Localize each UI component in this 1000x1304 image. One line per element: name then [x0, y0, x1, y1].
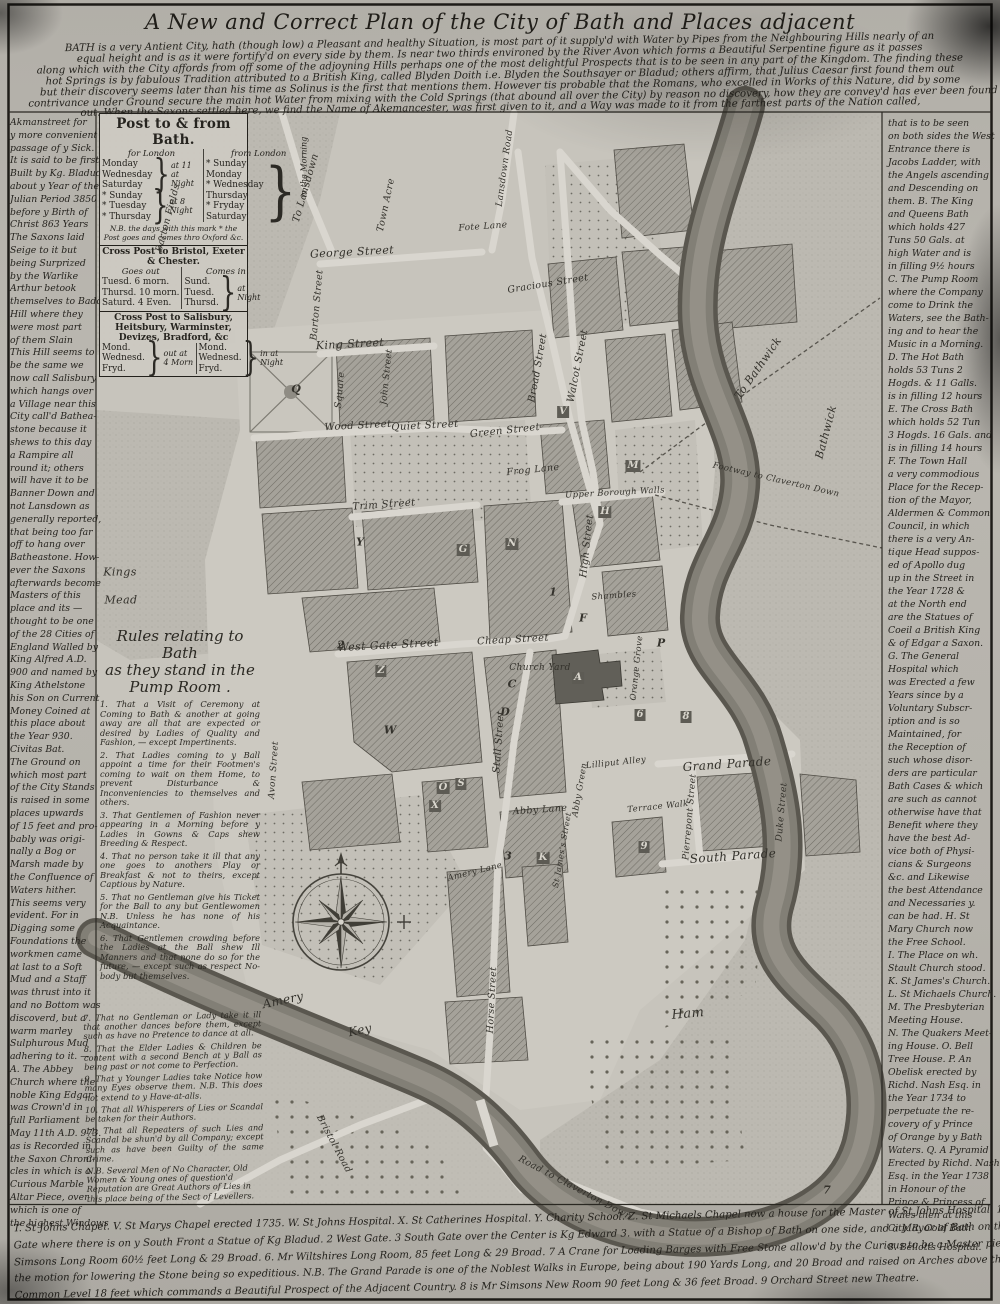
margin-line: generally reported,: [10, 514, 96, 527]
margin-line: Seige to it but: [10, 245, 96, 258]
post-day: Mond.: [199, 343, 242, 354]
map-scan-page: A New and Correct Plan of the City of Ba…: [0, 0, 1000, 1304]
post-day: Saturday: [102, 180, 152, 191]
margin-line: afterwards become: [10, 578, 96, 591]
right-margin-key: that is to be seenon both sides the West…: [888, 117, 994, 1235]
post-day: * Fryday: [206, 201, 264, 212]
margin-line: Erected by Richd. Nash: [888, 1157, 994, 1170]
margin-line: in filling 9½ hours: [888, 260, 994, 273]
margin-line: Waters, see the Bath-: [888, 312, 994, 325]
margin-line: full Parliament: [10, 1115, 96, 1128]
margin-line: ing House. O. Bell: [888, 1040, 994, 1053]
margin-line: and Necessaries y.: [888, 897, 994, 910]
margin-line: are the Statues of: [888, 611, 994, 624]
rules-title-line: Pump Room .: [100, 679, 260, 696]
post-table-note: N.B. the days with this mark * the Post …: [100, 222, 247, 246]
margin-line: Waters hither.: [10, 885, 96, 898]
margin-line: of the City Stands: [10, 782, 96, 795]
margin-line: iption and is so: [888, 715, 994, 728]
margin-line: being Surprized: [10, 258, 96, 271]
margin-line: the Free School.: [888, 936, 994, 949]
margin-line: E. The Cross Bath: [888, 403, 994, 416]
for-london-header: for London: [102, 149, 201, 159]
rule-item: 5. That no Gentleman give his Ticket for…: [100, 893, 260, 931]
margin-line: Years since by a: [888, 689, 994, 702]
margin-line: which most part: [10, 770, 96, 783]
brace-glyph: }: [220, 273, 237, 312]
margin-line: a Village near this: [10, 399, 96, 412]
margin-line: is raised in some: [10, 795, 96, 808]
margin-line: his Son on Current: [10, 693, 96, 706]
margin-line: Obelisk erected by: [888, 1066, 994, 1079]
margin-line: bably was origi-: [10, 834, 96, 847]
post-day: Fryd.: [102, 364, 145, 375]
margin-line: can be had. H. St: [888, 910, 994, 923]
margin-line: Hogds. & 11 Galls.: [888, 377, 994, 390]
margin-line: a very commodious: [888, 468, 994, 481]
post-day: * Sunday: [206, 159, 264, 170]
intro-paragraph: BATH is a very Antient City, hath (thoug…: [28, 31, 973, 121]
rule-item: 9. That y Younger Ladies take Notice how…: [84, 1071, 263, 1102]
margin-line: May 11th A.D. 973.: [10, 1128, 96, 1141]
post-time: in at Night: [260, 349, 290, 367]
margin-line: Voluntary Subscr-: [888, 702, 994, 715]
margin-line: 900 and named by: [10, 667, 96, 680]
margin-line: there is a very An-: [888, 533, 994, 546]
margin-line: of 15 feet and pro-: [10, 821, 96, 834]
post-day: Tuesd.: [184, 288, 218, 299]
margin-line: is in filling 14 hours: [888, 442, 994, 455]
margin-line: and Descending on: [888, 182, 994, 195]
post-time: in the Morning: [300, 184, 309, 198]
margin-line: Tuns 50 Gals. at: [888, 234, 994, 247]
margin-line: at last to a Soft: [10, 962, 96, 975]
rule-item: 6. That Gentlemen crowding before the La…: [100, 934, 260, 982]
margin-line: the Confluence of: [10, 872, 96, 885]
margin-line: this place about: [10, 718, 96, 731]
margin-line: Esq. in the Year 1738: [888, 1170, 994, 1183]
margin-line: Marsh made by: [10, 859, 96, 872]
margin-line: evident. For in: [10, 910, 96, 923]
margin-line: Coeil a British King: [888, 624, 994, 637]
margin-line: not Lansdown as: [10, 501, 96, 514]
margin-line: the Saxon Chroni-: [10, 1154, 96, 1167]
margin-line: Meeting House.: [888, 1014, 994, 1027]
margin-line: Hospital which: [888, 663, 994, 676]
post-day: Wednesd.: [102, 353, 145, 364]
margin-line: City call'd Bathea-: [10, 411, 96, 424]
margin-line: Benefit where they: [888, 819, 994, 832]
margin-line: I. The Place on wh.: [888, 949, 994, 962]
margin-line: K. St James's Church.: [888, 975, 994, 988]
post-day: Thursd.: [184, 298, 218, 309]
margin-line: 3 Hogds. 16 Gals. and: [888, 429, 994, 442]
margin-line: N. The Quakers Meet-: [888, 1027, 994, 1040]
margin-line: Stault Church stood.: [888, 962, 994, 975]
margin-line: Christ 863 Years: [10, 219, 96, 232]
margin-line: C. The Pump Room: [888, 273, 994, 286]
margin-line: L. St Michaels Church.: [888, 988, 994, 1001]
margin-line: Tree House. P. An: [888, 1053, 994, 1066]
margin-line: Place for the Recep-: [888, 481, 994, 494]
margin-line: such whose disor-: [888, 754, 994, 767]
map-title: A New and Correct Plan of the City of Ba…: [0, 10, 1000, 34]
margin-line: be the same we: [10, 360, 96, 373]
margin-line: G. The General: [888, 650, 994, 663]
margin-line: up in the Street in: [888, 572, 994, 585]
post-day: * Tuesday: [102, 201, 151, 212]
margin-line: Bath Cases & which: [888, 780, 994, 793]
margin-line: Church where the: [10, 1077, 96, 1090]
rule-item: 2. That Ladies coming to y Ball appoint …: [100, 751, 260, 808]
margin-line: Waters. Q. A Pyramid: [888, 1144, 994, 1157]
margin-line: was Crown'd in: [10, 1102, 96, 1115]
margin-line: otherwise have that: [888, 806, 994, 819]
rule-item: 4. That no person take it ill that any o…: [100, 852, 260, 890]
margin-line: that is to be seen: [888, 117, 994, 130]
margin-line: thought to be one: [10, 616, 96, 629]
margin-line: tique Head suppos-: [888, 546, 994, 559]
margin-line: of them Slain: [10, 335, 96, 348]
margin-line: Digging some: [10, 923, 96, 936]
margin-line: that being too far: [10, 527, 96, 540]
margin-line: passage of y Sick.: [10, 143, 96, 156]
margin-line: Akmanstreet for: [10, 117, 96, 130]
margin-line: ed of Apollo dug: [888, 559, 994, 572]
cross-post-title: Cross Post to Bristol, Exeter & Chester.: [100, 246, 247, 267]
margin-line: The Saxons laid: [10, 232, 96, 245]
brace-glyph: }: [146, 339, 163, 378]
margin-line: F. The Town Hall: [888, 455, 994, 468]
brace-glyph: }: [152, 187, 169, 226]
margin-line: noble King Edgar: [10, 1090, 96, 1103]
margin-line: at the North end: [888, 598, 994, 611]
margin-line: was Erected a few: [888, 676, 994, 689]
margin-line: of Orange by y Bath: [888, 1131, 994, 1144]
margin-line: This seems very: [10, 898, 96, 911]
margin-line: ever the Saxons: [10, 565, 96, 578]
margin-line: themselves to Badon: [10, 296, 96, 309]
margin-line: was thrust into it: [10, 987, 96, 1000]
margin-line: vice both of Physi-: [888, 845, 994, 858]
margin-line: M. The Presbyterian: [888, 1001, 994, 1014]
margin-line: ing and to hear the: [888, 325, 994, 338]
margin-line: King Alfred A.D.: [10, 654, 96, 667]
margin-line: Julian Period 3850: [10, 194, 96, 207]
margin-line: now call Salisbury: [10, 373, 96, 386]
post-time: out at 4 Morn: [164, 349, 194, 367]
post-day: Saturd. 4 Even.: [102, 298, 179, 309]
margin-line: Money Coined at: [10, 706, 96, 719]
post-day: * Wednesday: [206, 180, 264, 191]
margin-line: Maintained, for: [888, 728, 994, 741]
for-london-column: for London MondayWednesdaySaturday } at …: [100, 149, 203, 222]
rules-title-line: Rules relating to Bath: [100, 628, 260, 662]
margin-line: where the Company: [888, 286, 994, 299]
post-day: Mond.: [102, 343, 145, 354]
margin-line: Banner Down and: [10, 488, 96, 501]
margin-line: Curious Marble: [10, 1179, 96, 1192]
margin-line: cles in which is a: [10, 1166, 96, 1179]
margin-line: off to hang over: [10, 539, 96, 552]
margin-line: Jacobs Ladder, with: [888, 156, 994, 169]
post-day: Monday: [102, 159, 152, 170]
post-day: Wednesd.: [199, 353, 242, 364]
margin-line: the Year 1734 to: [888, 1092, 994, 1105]
margin-line: places upwards: [10, 808, 96, 821]
margin-line: which holds 427: [888, 221, 994, 234]
rules-title: Rules relating to Bathas they stand in t…: [100, 628, 260, 696]
margin-line: place and its —: [10, 603, 96, 616]
margin-line: &c. and Likewise: [888, 871, 994, 884]
post-day: Monday: [206, 170, 264, 181]
post-day: Tuesd. 6 morn.: [102, 277, 179, 288]
pump-room-rules-continued: 7. That no Gentleman or Lady take it ill…: [83, 1010, 265, 1204]
post-day: Sund.: [184, 277, 218, 288]
rules-note: N.B. Several Men of No Character, Old Wo…: [86, 1163, 265, 1204]
margin-line: Council, in which: [888, 520, 994, 533]
margin-line: Entrance there is: [888, 143, 994, 156]
margin-line: which hangs over: [10, 386, 96, 399]
post-time: at 11 at Night: [171, 161, 201, 188]
post-time: at 8 Night: [170, 197, 200, 215]
rules-title-line: as they stand in the: [100, 662, 260, 679]
rule-item: 10. That all Whisperers of Lies or Scand…: [85, 1102, 263, 1124]
margin-line: have the best Ad-: [888, 832, 994, 845]
rule-item: 8. That the Elder Ladies & Children be c…: [84, 1041, 263, 1072]
margin-line: will have it to be: [10, 475, 96, 488]
margin-line: on both sides the West: [888, 130, 994, 143]
margin-line: Aldermen & Common: [888, 507, 994, 520]
margin-line: by the Warlike: [10, 271, 96, 284]
margin-line: come to Drink the: [888, 299, 994, 312]
margin-line: which holds 52 Tun: [888, 416, 994, 429]
margin-line: cians & Surgeons: [888, 858, 994, 871]
margin-line: ders are particular: [888, 767, 994, 780]
margin-line: This Hill seems to: [10, 347, 96, 360]
margin-line: the Year 930.: [10, 731, 96, 744]
cross-post-salisbury: Cross Post to Salisbury, Heitsbury, Warm…: [100, 312, 247, 377]
bottom-key-text: T. St Johns Chapel. V. St Marys Chapel e…: [13, 1203, 986, 1304]
post-time: at Night: [237, 284, 267, 302]
rule-item: 7. That no Gentleman or Lady take it ill…: [83, 1010, 262, 1041]
margin-line: y more convenient: [10, 130, 96, 143]
margin-line: A. The Abbey: [10, 1064, 96, 1077]
brace-glyph: }: [243, 339, 260, 378]
margin-line: were most part: [10, 322, 96, 335]
margin-line: the Reception of: [888, 741, 994, 754]
margin-line: them. B. The King: [888, 195, 994, 208]
post-day: Thursday: [206, 191, 264, 202]
margin-line: Arthur betook: [10, 283, 96, 296]
post-day: * Sunday: [102, 191, 151, 202]
from-london-column: from London * SundayMonday* WednesdayThu…: [203, 149, 313, 222]
margin-line: the Angels ascending: [888, 169, 994, 182]
margin-line: D. The Hot Bath: [888, 351, 994, 364]
margin-line: a Rampire all: [10, 450, 96, 463]
margin-line: holds 53 Tuns 2: [888, 364, 994, 377]
margin-line: Built by Kg. Bladud: [10, 168, 96, 181]
margin-line: Foundations the: [10, 936, 96, 949]
margin-line: the Year 1728 &: [888, 585, 994, 598]
margin-line: shews to this day: [10, 437, 96, 450]
cross-post-bristol: Cross Post to Bristol, Exeter & Chester.…: [100, 246, 247, 312]
margin-line: stone because it: [10, 424, 96, 437]
margin-line: Civitas Bat.: [10, 744, 96, 757]
margin-line: Mud and a Staff: [10, 974, 96, 987]
margin-line: round it; others: [10, 463, 96, 476]
margin-line: about y Year of the: [10, 181, 96, 194]
margin-line: Richd. Nash Esq. in: [888, 1079, 994, 1092]
margin-line: the best Attendance: [888, 884, 994, 897]
margin-line: & of Edgar a Saxon.: [888, 637, 994, 650]
margin-line: Altar Piece, over: [10, 1192, 96, 1205]
margin-line: in Honour of the: [888, 1183, 994, 1196]
margin-line: Batheastone. How-: [10, 552, 96, 565]
margin-line: Masters of this: [10, 590, 96, 603]
post-day: Wednesday: [102, 170, 152, 181]
post-table: Post to & from Bath. for London MondayWe…: [99, 113, 248, 377]
margin-line: before y Birth of: [10, 207, 96, 220]
margin-line: Hill where they: [10, 309, 96, 322]
margin-line: workmen came: [10, 949, 96, 962]
post-day: Fryd.: [199, 364, 242, 375]
margin-line: covery of y Prince: [888, 1118, 994, 1131]
margin-line: and no Bottom was: [10, 1000, 96, 1013]
goes-out-header: Goes out: [102, 267, 179, 277]
post-table-title: Post to & from Bath.: [100, 114, 247, 149]
margin-line: Mary Church now: [888, 923, 994, 936]
brace-glyph: }: [265, 159, 297, 222]
margin-line: England Walled by: [10, 642, 96, 655]
margin-line: and Queens Bath: [888, 208, 994, 221]
margin-line: is in filling 12 hours: [888, 390, 994, 403]
margin-line: perpetuate the re-: [888, 1105, 994, 1118]
post-day: Thursd. 10 morn.: [102, 288, 179, 299]
pump-room-rules: Rules relating to Bathas they stand in t…: [100, 628, 260, 984]
margin-line: of the 28 Cities of: [10, 629, 96, 642]
rule-item: 1. That a Visit of Ceremony at Coming to…: [100, 700, 260, 748]
margin-line: The Ground on: [10, 757, 96, 770]
margin-line: as is Recorded in: [10, 1141, 96, 1154]
cross-post-title: Cross Post to Salisbury, Heitsbury, Warm…: [100, 312, 247, 343]
post-day: * Thursday: [102, 212, 151, 223]
rule-item: 11. That all Repeaters of such Lies and …: [85, 1123, 264, 1164]
margin-line: high Water and is: [888, 247, 994, 260]
margin-line: which is one of: [10, 1205, 96, 1218]
margin-line: King Athelstone: [10, 680, 96, 693]
margin-line: are such as cannot: [888, 793, 994, 806]
margin-line: Music in a Morning.: [888, 338, 994, 351]
post-day: Saturday: [206, 212, 264, 223]
margin-line: nally a Bog or: [10, 846, 96, 859]
rule-item: 3. That Gentlemen of Fashion never appea…: [100, 811, 260, 849]
margin-line: It is said to be first: [10, 155, 96, 168]
margin-line: tion of the Mayor,: [888, 494, 994, 507]
